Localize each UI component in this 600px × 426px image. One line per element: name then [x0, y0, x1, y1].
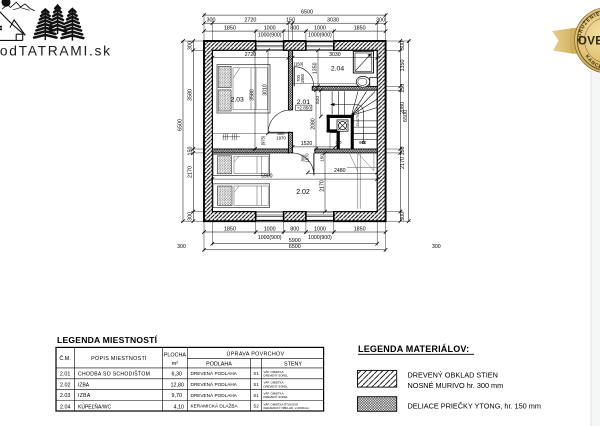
svg-text:1850: 1850 — [354, 226, 366, 232]
svg-text:1000(900): 1000(900) — [308, 33, 332, 39]
svg-text:1000: 1000 — [264, 226, 276, 232]
svg-text:1950: 1950 — [300, 73, 305, 83]
svg-text:3010: 3010 — [262, 84, 268, 96]
svg-text:3580: 3580 — [249, 89, 255, 101]
svg-text:2.04: 2.04 — [331, 65, 344, 72]
svg-text:IZBA: IZBA — [78, 383, 90, 389]
svg-text:300: 300 — [400, 212, 406, 221]
svg-text:1970: 1970 — [276, 136, 286, 141]
svg-text:DELIACE PRIEČKY YTONG, hr. 15: DELIACE PRIEČKY YTONG, hr. 150 mm — [408, 402, 541, 411]
svg-text:960: 960 — [359, 140, 367, 145]
svg-text:ÚPRAVA POVRCHOV: ÚPRAVA POVRCHOV — [227, 350, 285, 357]
svg-text:150: 150 — [400, 147, 406, 156]
svg-text:150: 150 — [400, 84, 406, 93]
svg-text:300: 300 — [188, 212, 194, 221]
svg-text:5900: 5900 — [289, 238, 301, 244]
svg-text:1000: 1000 — [314, 226, 326, 232]
svg-text:1350: 1350 — [312, 62, 318, 74]
svg-text:S1: S1 — [253, 393, 259, 398]
svg-text:LEGENDA MATERIÁLOV:: LEGENDA MATERIÁLOV: — [358, 344, 469, 354]
svg-text:NOSNÉ MURIVO hr. 300 mm: NOSNÉ MURIVO hr. 300 mm — [408, 381, 504, 390]
svg-text:6500: 6500 — [301, 9, 313, 15]
svg-text:S1: S1 — [253, 382, 259, 387]
svg-text:1000(900): 1000(900) — [308, 235, 332, 241]
svg-text:2170: 2170 — [319, 180, 325, 192]
svg-text:800: 800 — [290, 25, 299, 31]
svg-text:KERAMICKÁ DLAŽBA: KERAMICKÁ DLAŽBA — [191, 402, 239, 409]
svg-text:1850: 1850 — [354, 25, 366, 31]
svg-text:1000: 1000 — [264, 25, 276, 31]
svg-text:920: 920 — [315, 96, 321, 104]
svg-text:1000(900): 1000(900) — [258, 235, 282, 241]
svg-text:2.02: 2.02 — [296, 189, 310, 196]
svg-text:12,80: 12,80 — [171, 383, 185, 389]
svg-text:KERAMICKÝ OBKLAD, v=2000mm: KERAMICKÝ OBKLAD, v=2000mm — [264, 406, 310, 410]
svg-text:2480: 2480 — [334, 168, 346, 174]
svg-text:300: 300 — [376, 18, 385, 24]
svg-text:150: 150 — [188, 147, 194, 156]
svg-text:+2.850: +2.850 — [297, 106, 312, 111]
svg-text:DREVENÝ SOKEL: DREVENÝ SOKEL — [264, 384, 289, 388]
svg-text:3030: 3030 — [329, 52, 341, 58]
svg-text:15x175x250: 15x175x250 — [356, 107, 360, 127]
svg-text:2.03: 2.03 — [60, 393, 71, 399]
svg-text:6,30: 6,30 — [172, 371, 183, 377]
svg-text:2170: 2170 — [400, 157, 406, 169]
svg-text:DREVENÁ PODLAHA: DREVENÁ PODLAHA — [191, 381, 238, 387]
svg-text:DREVENÁ PODLAHA: DREVENÁ PODLAHA — [191, 392, 238, 398]
svg-text:m²: m² — [172, 361, 178, 367]
svg-text:9,70: 9,70 — [172, 393, 183, 399]
svg-text:5900: 5900 — [261, 174, 273, 180]
svg-text:LEGENDA MIESTNOSTÍ: LEGENDA MIESTNOSTÍ — [57, 335, 158, 345]
svg-text:1850: 1850 — [224, 25, 236, 31]
svg-text:300: 300 — [177, 244, 186, 250]
svg-text:DREVENÝ SOKEL: DREVENÝ SOKEL — [264, 374, 289, 378]
svg-text:(150): (150) — [294, 61, 304, 66]
svg-text:150: 150 — [286, 18, 295, 24]
svg-text:300: 300 — [400, 41, 406, 50]
svg-text:(975): (975) — [261, 135, 266, 145]
svg-text:800: 800 — [290, 226, 299, 232]
svg-text:Č.M.: Č.M. — [59, 355, 70, 362]
svg-text:PODLAHA: PODLAHA — [206, 362, 232, 368]
svg-text:PLOCHA: PLOCHA — [164, 353, 187, 359]
svg-text:KÚPEĽŇA/WC: KÚPEĽŇA/WC — [78, 403, 111, 410]
svg-text:S1: S1 — [253, 371, 259, 376]
svg-text:DREVENÝ SOKEL: DREVENÝ SOKEL — [264, 395, 289, 399]
svg-text:2080: 2080 — [310, 118, 316, 130]
svg-text:STENY: STENY — [284, 362, 302, 368]
svg-text:300: 300 — [207, 18, 216, 24]
svg-text:3030: 3030 — [327, 18, 339, 24]
svg-text:2720: 2720 — [245, 52, 257, 58]
svg-text:2720: 2720 — [244, 18, 256, 24]
svg-text:300: 300 — [432, 244, 441, 250]
svg-text:2.03: 2.03 — [231, 97, 244, 104]
svg-text:150: 150 — [319, 154, 324, 162]
svg-text:1000: 1000 — [314, 25, 326, 31]
svg-text:podTATRAMI.sk: podTATRAMI.sk — [0, 43, 112, 58]
svg-text:365: 365 — [335, 141, 341, 145]
svg-text:S2: S2 — [253, 404, 259, 409]
svg-text:POPIS MIESTNOSTI: POPIS MIESTNOSTI — [91, 356, 147, 362]
svg-text:2.04: 2.04 — [60, 404, 71, 410]
svg-text:1000(900): 1000(900) — [258, 33, 282, 39]
svg-text:6500: 6500 — [177, 119, 183, 131]
svg-text:6500: 6500 — [403, 110, 409, 122]
svg-text:6500: 6500 — [289, 244, 301, 250]
svg-text:DREVENÁ PODLAHA: DREVENÁ PODLAHA — [191, 370, 238, 376]
svg-text:2170: 2170 — [188, 166, 194, 178]
svg-text:1850: 1850 — [224, 226, 236, 232]
svg-text:1970: 1970 — [305, 153, 310, 163]
svg-text:1350: 1350 — [400, 60, 406, 72]
svg-text:2.01: 2.01 — [60, 371, 71, 377]
svg-text:2.02: 2.02 — [60, 383, 71, 389]
svg-text:DREVENÝ OBKLAD STIEN: DREVENÝ OBKLAD STIEN — [408, 371, 498, 380]
svg-text:3580: 3580 — [188, 89, 194, 101]
svg-text:CHODBA SO SCHODIŠŤOM: CHODBA SO SCHODIŠŤOM — [78, 369, 150, 377]
svg-text:4,10: 4,10 — [174, 404, 185, 410]
svg-text:IZBA: IZBA — [78, 393, 91, 399]
svg-text:1520: 1520 — [301, 141, 313, 147]
svg-text:300: 300 — [188, 41, 194, 50]
